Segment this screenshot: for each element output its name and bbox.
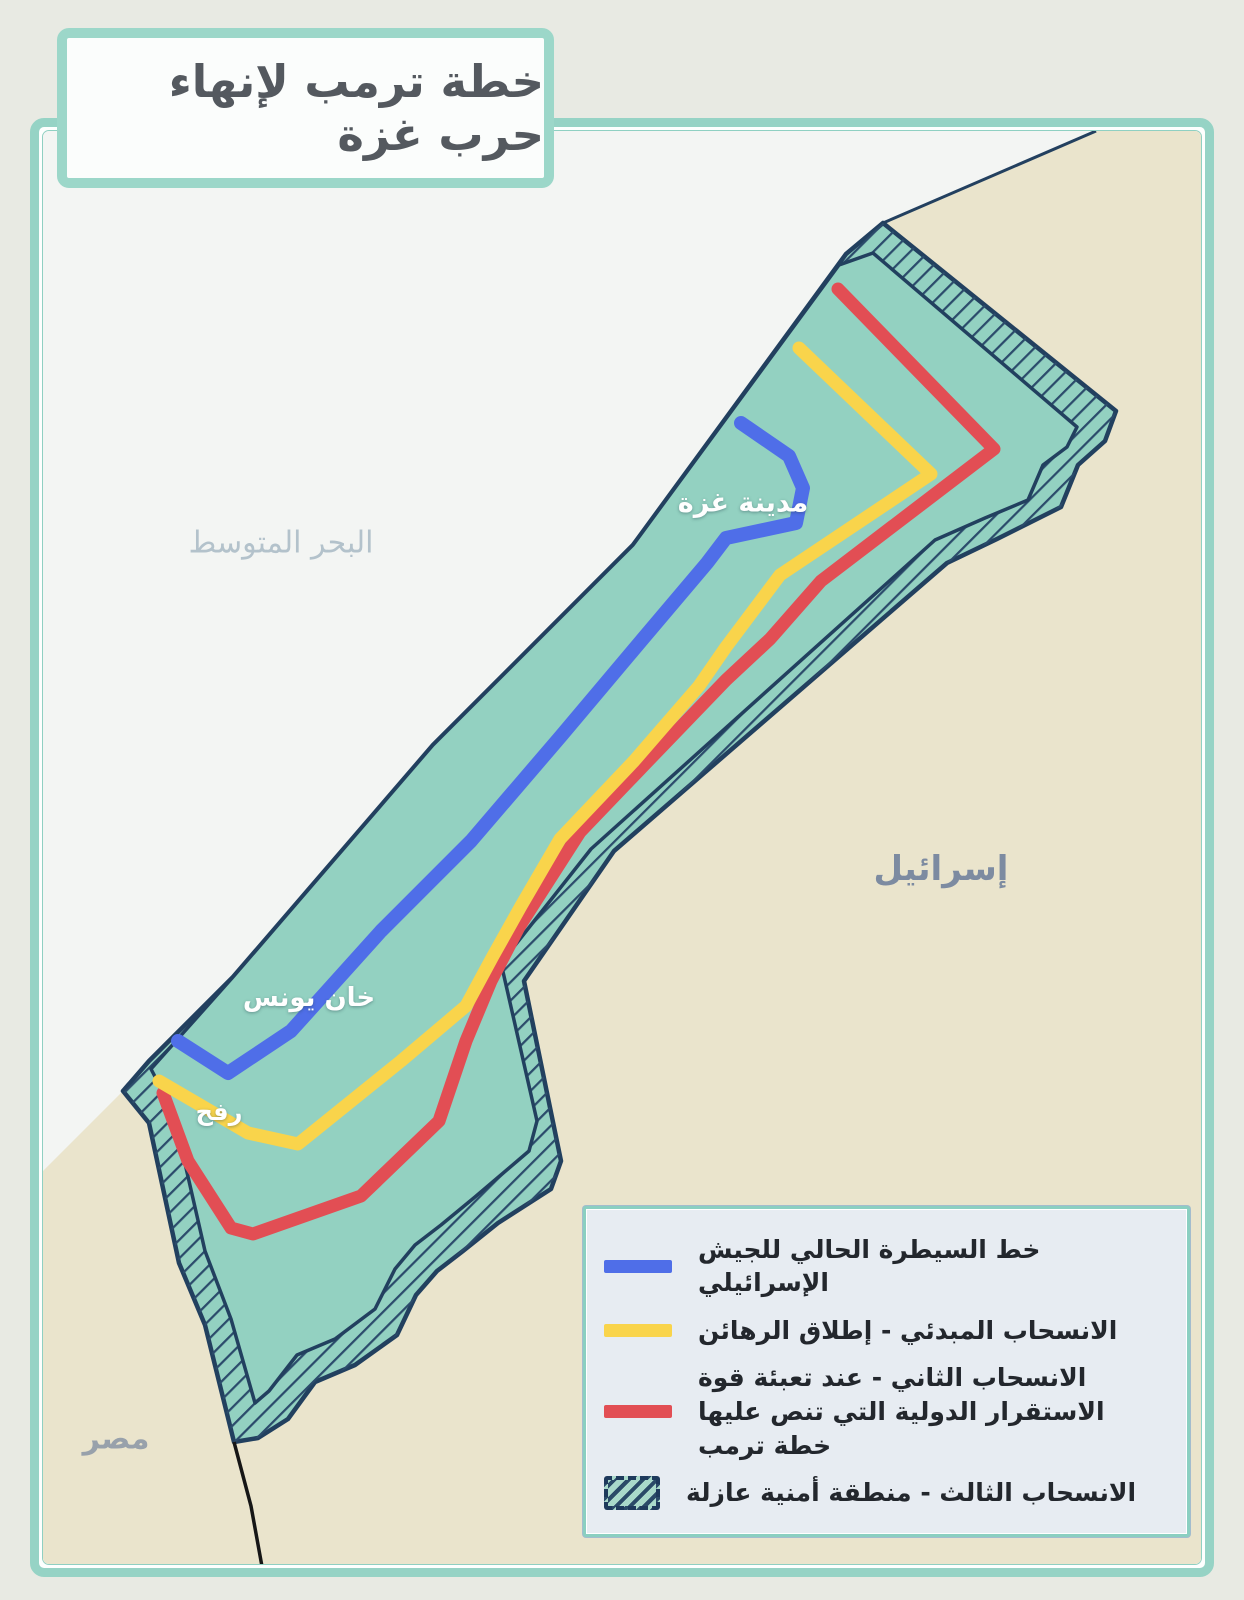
legend-label: خط السيطرة الحالي للجيش الإسرائيلي — [698, 1233, 1163, 1301]
red-line-swatch — [604, 1405, 672, 1418]
legend-label: الانسحاب الثالث - منطقة أمنية عازلة — [686, 1476, 1136, 1510]
legend-label: الانسحاب المبدئي - إطلاق الرهائن — [698, 1314, 1117, 1348]
egypt-label: مصر — [83, 1422, 150, 1457]
yellow-line-swatch — [604, 1324, 672, 1337]
legend-item-buffer-zone: الانسحاب الثالث - منطقة أمنية عازلة — [604, 1476, 1169, 1510]
map-title-box: خطة ترمب لإنهاء حرب غزة — [57, 28, 554, 188]
legend-item-initial-withdrawal: الانسحاب المبدئي - إطلاق الرهائن — [604, 1314, 1169, 1348]
mediterranean-sea-label: البحر المتوسط — [189, 526, 374, 561]
israel-label: إسرائيل — [874, 849, 1009, 889]
page-title: خطة ترمب لإنهاء حرب غزة — [67, 55, 544, 161]
hatched-area-swatch — [604, 1476, 660, 1510]
legend-item-israeli-control: خط السيطرة الحالي للجيش الإسرائيلي — [604, 1233, 1169, 1301]
khan-younis-label: خان يونس — [243, 983, 375, 1013]
blue-line-swatch — [604, 1260, 672, 1273]
rafah-label: رفح — [196, 1098, 243, 1126]
legend: خط السيطرة الحالي للجيش الإسرائيلي الانس… — [583, 1206, 1190, 1537]
gaza-city-label: مدينة غزة — [678, 488, 808, 519]
legend-item-second-withdrawal: الانسحاب الثاني - عند تعبئة قوة الاستقرا… — [604, 1361, 1169, 1462]
legend-label: الانسحاب الثاني - عند تعبئة قوة الاستقرا… — [698, 1361, 1163, 1462]
